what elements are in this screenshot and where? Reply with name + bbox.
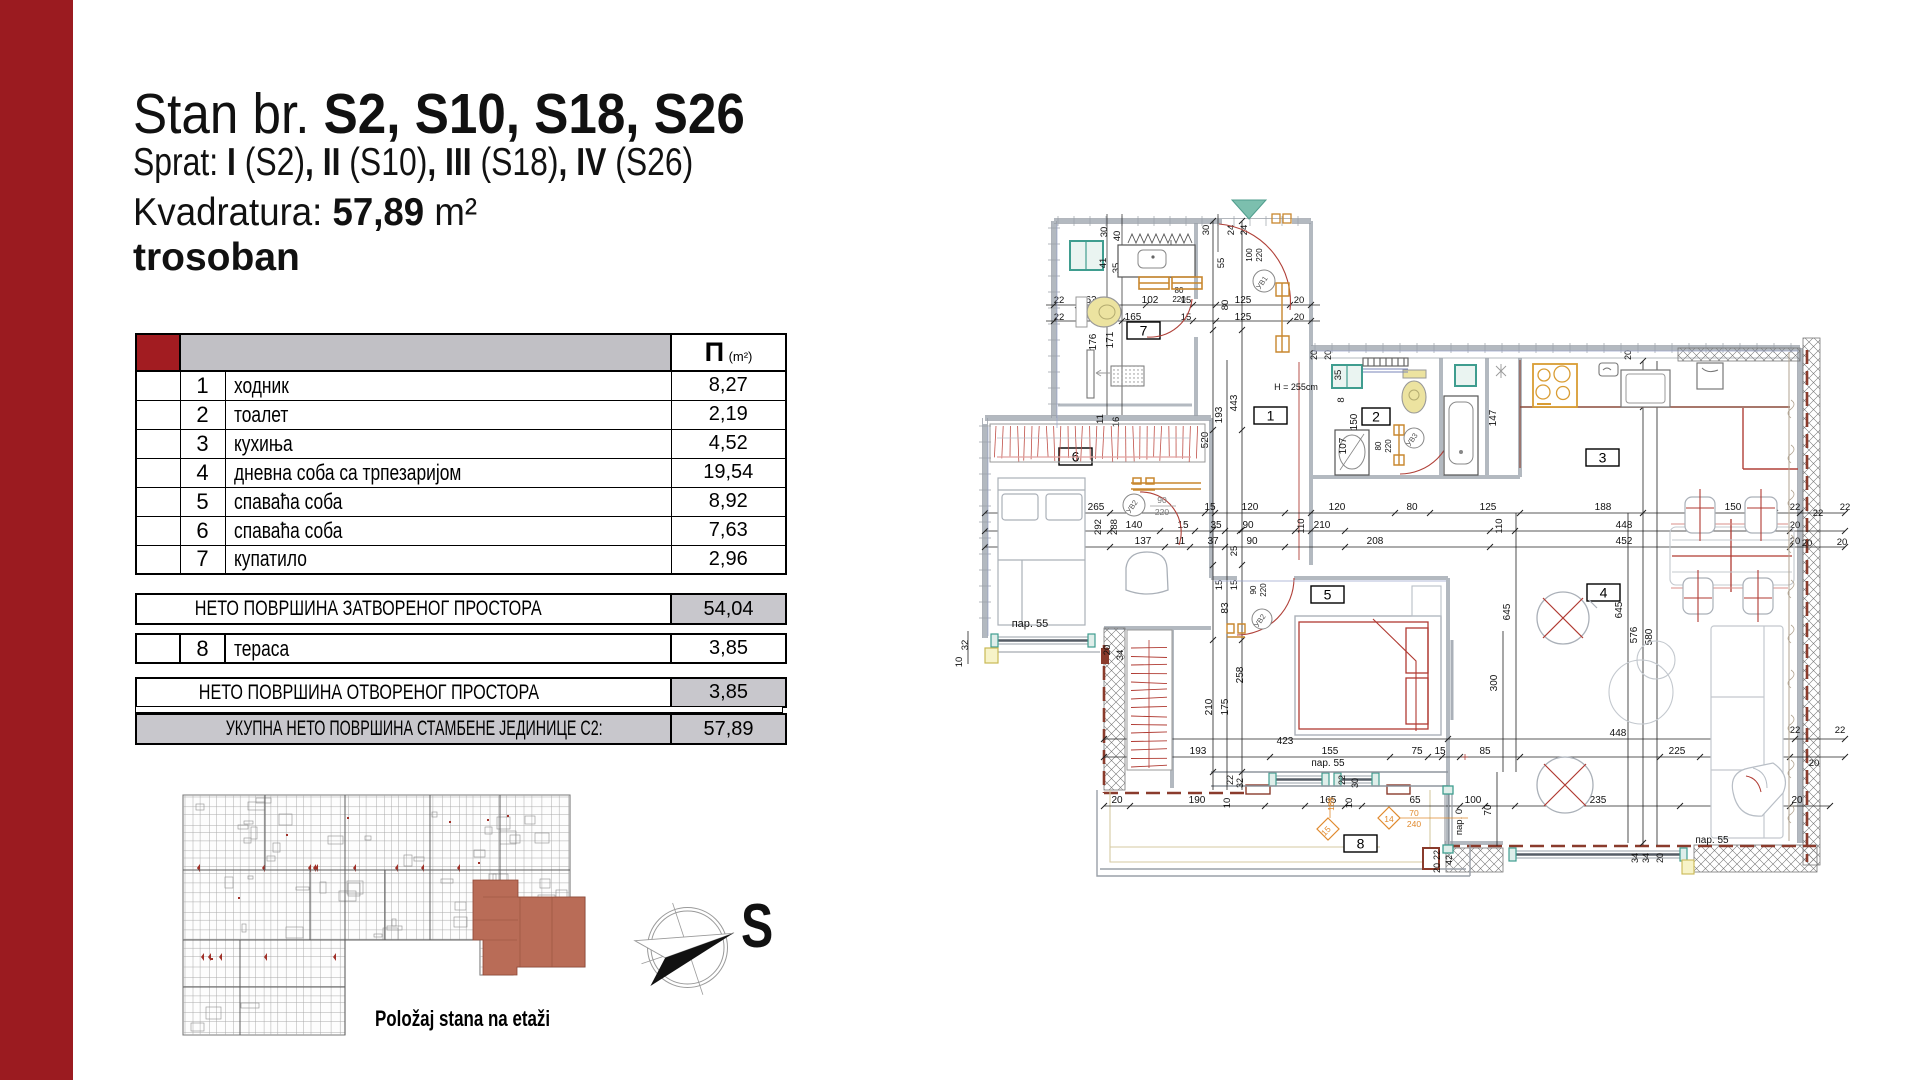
svg-text:4: 4 [1600,585,1608,601]
svg-text:20: 20 [1837,537,1848,548]
svg-text:225: 225 [1669,746,1686,757]
svg-text:5: 5 [1324,587,1332,603]
svg-text:22: 22 [1054,295,1065,306]
svg-text:37: 37 [1207,536,1219,547]
svg-text:645: 645 [1502,603,1513,620]
svg-text:137: 137 [1135,536,1152,547]
svg-text:150: 150 [1349,413,1360,430]
svg-text:70: 70 [1409,808,1419,818]
svg-text:55: 55 [1216,258,1227,269]
svg-text:34: 34 [1115,650,1126,661]
svg-text:102: 102 [1142,295,1159,306]
svg-text:65: 65 [1409,795,1421,806]
svg-text:175: 175 [1220,698,1231,715]
svg-text:110: 110 [1494,518,1505,533]
svg-text:20: 20 [1102,645,1113,656]
svg-text:80: 80 [1374,441,1383,450]
svg-text:20: 20 [1111,795,1123,806]
svg-text:H = 255cm: H = 255cm [1274,382,1318,392]
svg-text:22: 22 [1790,502,1801,513]
svg-text:32: 32 [960,640,971,651]
svg-text:150: 150 [1725,502,1742,513]
svg-text:107: 107 [1338,437,1349,454]
svg-text:208: 208 [1367,536,1384,547]
svg-text:20: 20 [1294,312,1305,323]
svg-text:24: 24 [1239,225,1250,236]
svg-text:40: 40 [1112,231,1123,242]
svg-text:140: 140 [1126,520,1143,531]
svg-text:20: 20 [1791,795,1803,806]
svg-text:120: 120 [1329,502,1346,513]
svg-text:20: 20 [1655,853,1665,863]
svg-text:176: 176 [1088,333,1099,350]
svg-text:14: 14 [1384,814,1394,824]
svg-text:35: 35 [1210,520,1222,531]
svg-text:80: 80 [1175,286,1184,295]
svg-text:188: 188 [1595,502,1612,513]
svg-text:210: 210 [1204,698,1215,715]
svg-text:10: 10 [954,657,965,668]
svg-text:15: 15 [1434,746,1446,757]
svg-text:11: 11 [1095,414,1106,424]
svg-text:пар. 0: пар. 0 [1454,809,1465,835]
svg-text:220: 220 [1384,439,1393,453]
svg-text:22: 22 [1225,775,1235,785]
svg-text:7: 7 [1140,323,1148,339]
svg-text:20: 20 [1309,350,1319,360]
svg-text:185: 185 [1327,797,1336,811]
svg-text:15: 15 [1204,502,1216,513]
svg-text:20: 20 [1323,350,1333,360]
svg-text:120: 120 [1242,502,1259,513]
svg-text:258: 258 [1235,666,1246,683]
svg-text:S: S [741,891,773,960]
svg-text:292: 292 [1093,519,1104,535]
svg-text:171: 171 [1105,331,1116,348]
svg-text:пар. 55: пар. 55 [1311,758,1345,769]
svg-text:190: 190 [1189,795,1206,806]
svg-text:193: 193 [1214,406,1225,423]
svg-text:20: 20 [1790,520,1801,531]
svg-text:22: 22 [1432,850,1442,860]
svg-text:30: 30 [1201,225,1212,236]
svg-text:125: 125 [1235,312,1252,323]
svg-text:90: 90 [1242,520,1254,531]
svg-text:443: 443 [1229,394,1240,411]
svg-text:22: 22 [1835,725,1846,736]
svg-text:22: 22 [1813,508,1824,519]
svg-text:10: 10 [1222,798,1233,809]
svg-text:2: 2 [1372,409,1380,425]
svg-text:210: 210 [1314,520,1331,531]
svg-text:32: 32 [1235,778,1245,788]
svg-text:8: 8 [1336,397,1347,402]
svg-text:16: 16 [1111,417,1122,428]
svg-text:15: 15 [1177,520,1189,531]
svg-text:147: 147 [1488,409,1499,426]
svg-text:20: 20 [1790,536,1801,547]
svg-text:22: 22 [1790,725,1801,736]
svg-text:100: 100 [1465,795,1482,806]
svg-text:80: 80 [1220,300,1231,311]
svg-text:576: 576 [1629,626,1640,643]
svg-text:448: 448 [1610,728,1627,739]
svg-text:220: 220 [1255,248,1264,262]
svg-text:3: 3 [1599,450,1607,466]
svg-text:35: 35 [1333,370,1344,381]
svg-text:220: 220 [1172,295,1186,304]
svg-text:452: 452 [1616,536,1633,547]
svg-text:220: 220 [1259,583,1268,597]
svg-text:30: 30 [1350,778,1360,788]
svg-text:220: 220 [1155,507,1169,517]
svg-text:90: 90 [1249,585,1258,594]
svg-text:240: 240 [1407,819,1421,829]
svg-text:300: 300 [1489,674,1500,691]
svg-text:22: 22 [1054,312,1065,323]
svg-text:90: 90 [1246,536,1258,547]
svg-text:70: 70 [1483,804,1494,816]
svg-text:125: 125 [1235,295,1252,306]
svg-text:34: 34 [1630,853,1640,863]
svg-text:645: 645 [1614,601,1625,618]
svg-text:265: 265 [1088,502,1105,513]
svg-text:20: 20 [1623,350,1633,360]
svg-text:пар. 55: пар. 55 [1695,835,1729,846]
svg-text:25: 25 [1229,546,1240,557]
svg-text:193: 193 [1190,746,1207,757]
svg-text:580: 580 [1644,628,1655,645]
svg-text:80: 80 [1406,502,1418,513]
svg-text:448: 448 [1616,520,1633,531]
svg-text:пар. 55: пар. 55 [1012,618,1049,630]
svg-text:110: 110 [1296,518,1307,533]
svg-text:42: 42 [1444,855,1454,865]
svg-text:235: 235 [1590,795,1607,806]
svg-text:8: 8 [1357,836,1365,852]
svg-text:41: 41 [1098,258,1109,269]
svg-text:20: 20 [1809,758,1820,769]
svg-text:155: 155 [1322,746,1339,757]
svg-text:20: 20 [1802,538,1813,549]
svg-text:85: 85 [1479,746,1491,757]
svg-text:90: 90 [1157,495,1167,505]
svg-text:288: 288 [1109,519,1120,535]
svg-text:22: 22 [1840,502,1851,513]
svg-text:10: 10 [1344,798,1355,809]
svg-text:125: 125 [1480,502,1497,513]
svg-text:20: 20 [1432,863,1442,873]
svg-text:34: 34 [1641,853,1651,863]
svg-text:1: 1 [1267,408,1275,424]
svg-text:423: 423 [1277,736,1294,747]
svg-text:22: 22 [1337,775,1347,785]
svg-text:100: 100 [1245,248,1254,262]
svg-text:75: 75 [1411,746,1423,757]
svg-text:83: 83 [1220,602,1231,614]
svg-text:30: 30 [1099,227,1110,238]
svg-text:20: 20 [1294,295,1305,306]
